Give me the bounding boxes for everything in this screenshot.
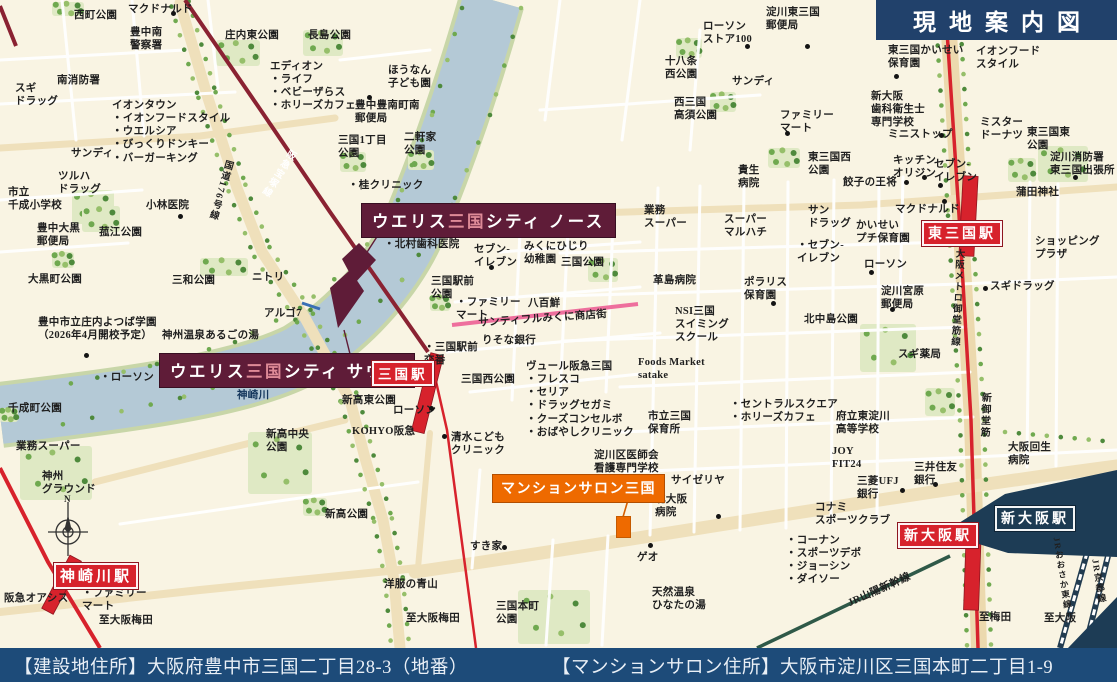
map-label: JR京都線 xyxy=(1089,558,1107,605)
map-label: JOY FIT24 xyxy=(832,445,862,471)
map-label: 北中島公園 xyxy=(804,313,858,326)
map-label: 三国1丁目 公園 xyxy=(338,134,387,160)
map-label: 豊中大黒 郵便局 xyxy=(37,222,80,248)
poi-dot xyxy=(942,199,947,204)
poi-dot xyxy=(894,74,899,79)
map-label: 業務 スーパー xyxy=(644,204,687,230)
map-label: 淀川東三国 郵便局 xyxy=(766,6,820,32)
map-label: 西三国 高須公園 xyxy=(674,96,717,122)
map-label: JRおおさか東線 xyxy=(1051,536,1073,610)
poi-dot xyxy=(648,543,653,548)
map-label: ミスター ドーナツ xyxy=(980,116,1023,142)
map-label: 十八条 西公園 xyxy=(665,55,697,81)
map-label: 八百鮮 xyxy=(528,297,560,310)
wellith-south-mid: 三国 xyxy=(246,362,284,381)
poi-dot xyxy=(890,307,895,312)
map-label: 豊中市立庄内よつば学園 （2026年4月開校予定） xyxy=(38,316,157,342)
map-label: 淀川区医師会 看護専門学校 xyxy=(594,449,659,475)
map-label: 大阪メトロ御堂筋線 xyxy=(947,248,964,347)
poi-dot xyxy=(489,265,494,270)
map-label: ・ローソン xyxy=(100,371,154,384)
map-label: サン ドラッグ xyxy=(808,204,851,230)
poi-dot xyxy=(904,180,909,185)
map-label: イオンフード スタイル xyxy=(976,45,1041,71)
mansion-salon-marker xyxy=(616,516,631,538)
map-label: 神州温泉あるごの湯 xyxy=(162,329,259,342)
map-label: 業務スーパー xyxy=(16,440,81,453)
map-label: 阪急宝塚線 xyxy=(257,146,297,199)
map-label: 府立東淀川 高等学校 xyxy=(836,410,890,436)
map-label: ・セントラルスクエア ・ホリーズカフェ xyxy=(730,398,838,424)
map-label: 淀川消防署 東三国出張所 xyxy=(1050,151,1115,177)
map-label: スーパー マルハチ xyxy=(724,213,767,239)
map-label: 千成町公園 xyxy=(8,402,62,415)
map-label: ・北村歯科医院 xyxy=(384,238,460,251)
poi-dot xyxy=(442,434,447,439)
map-label: 大阪回生 病院 xyxy=(1008,441,1051,467)
map-label: 神州 グラウンド xyxy=(42,470,96,496)
map-label: 大黒町公園 xyxy=(28,273,82,286)
map-label: 三和公園 xyxy=(172,274,215,287)
address-bar: 【建設地住所】大阪府豊中市三国二丁目28-3（地番） 【マンションサロン住所】大… xyxy=(0,648,1117,682)
map-label: 革島病院 xyxy=(653,274,696,287)
site-guide-map: マクドナルド西町公園豊中南 警察署庄内東公園長島公園エディオン ・ライフ ・ベビ… xyxy=(0,0,1117,682)
map-label: 豊中豊南町南 郵便局 xyxy=(355,99,420,125)
poi-dot xyxy=(933,482,938,487)
poi-dot xyxy=(367,95,372,100)
map-label: 淀川宮原 郵便局 xyxy=(881,285,924,311)
map-label: 神崎川 xyxy=(237,389,269,402)
poi-dot xyxy=(983,286,988,291)
map-label: 阪急オアシス xyxy=(4,592,68,605)
mansion-salon-banner: マンションサロン三国 xyxy=(492,474,665,503)
map-label: 東三国西 公園 xyxy=(808,151,851,177)
map-label: 三菱UFJ 銀行 xyxy=(857,475,899,501)
map-label: 洋服の青山 xyxy=(384,578,438,591)
poi-dot xyxy=(1073,175,1078,180)
poi-dot xyxy=(502,545,507,550)
map-label: 東三国かいせい 保育園 xyxy=(888,44,964,70)
map-label: スギ薬局 xyxy=(898,348,941,361)
map-label: すき家 xyxy=(470,540,502,553)
map-label: ・セブン- イレブン xyxy=(797,239,844,265)
map-label: 長島公園 xyxy=(308,29,351,42)
map-label: りそな銀行 xyxy=(482,334,536,347)
poi-dot xyxy=(84,353,89,358)
poi-dot xyxy=(869,270,874,275)
map-label: サイゼリヤ xyxy=(671,474,725,487)
poi-dot xyxy=(171,11,176,16)
map-label: マクドナルド xyxy=(128,3,193,16)
poi-dot xyxy=(805,44,810,49)
construction-site-address: 【建設地住所】大阪府豊中市三国二丁目28-3（地番） xyxy=(14,653,468,679)
map-label: 小林医院 xyxy=(146,199,189,212)
map-label: 菰江公園 xyxy=(99,226,142,239)
map-labels-layer: マクドナルド西町公園豊中南 警察署庄内東公園長島公園エディオン ・ライフ ・ベビ… xyxy=(0,0,1117,648)
map-label: 蒲田神社 xyxy=(1016,186,1059,199)
wellith-north-banner: ウエリス三国シティ ノース xyxy=(361,203,616,238)
map-label: コナミ スポーツクラブ xyxy=(815,501,890,527)
map-label: 西町公園 xyxy=(74,9,117,22)
map-label: ニトリ xyxy=(252,271,284,284)
map-label: 二軒家 公園 xyxy=(404,131,436,157)
map-label: かいせい プチ保育園 xyxy=(856,219,910,245)
map-label: 新高公園 xyxy=(325,508,368,521)
wellith-north-mid: 三国 xyxy=(448,212,486,231)
poi-dot xyxy=(716,514,721,519)
map-label: ヴュール阪急三国 ・フレスコ ・セリア ・ドラッグセガミ ・クーズコンセルボ ・… xyxy=(526,360,634,439)
map-label: ツルハ ドラッグ xyxy=(58,170,101,196)
map-label: サンディ xyxy=(71,147,113,160)
map-label: N xyxy=(64,494,71,505)
map-label: イオンタウン ・イオンフードスタイル ・ウエルシア ・びっくりドンキー ・バーガ… xyxy=(112,99,230,165)
map-label: 三国公園 xyxy=(561,256,604,269)
poi-dot xyxy=(785,131,790,136)
salon-address: 【マンションサロン住所】大阪市淀川区三国本町二丁目1-9 xyxy=(552,653,1053,679)
page-title: 現地案内図 xyxy=(876,0,1117,40)
map-label: 至大阪梅田 xyxy=(99,614,153,627)
map-label: 天然温泉 ひなたの湯 xyxy=(652,586,706,612)
map-label: NSI三国 スイミング スクール xyxy=(675,305,729,344)
higashimikuni-station-banner: 東三国駅 xyxy=(921,220,1003,247)
map-label: ・コーナン ・スポーツデポ ・ジョーシン ・ダイソー xyxy=(786,534,861,587)
poi-dot xyxy=(939,133,944,138)
kanzakigawa-station-banner: 神崎川駅 xyxy=(53,562,139,590)
map-label: ショッピング プラザ xyxy=(1035,235,1100,261)
map-label: アルゴ7 xyxy=(264,307,302,320)
map-label: スギドラッグ xyxy=(990,280,1055,293)
wellith-south-pre: ウエリス xyxy=(170,362,246,381)
map-label: 至大阪梅田 xyxy=(406,612,460,625)
map-label: 新高東公園 xyxy=(342,394,396,407)
wellith-north-post: シティ ノース xyxy=(486,212,605,231)
map-label: ほうなん 子ども園 xyxy=(388,64,431,90)
map-label: 市立 千成小学校 xyxy=(8,186,62,212)
map-label: 至梅田 xyxy=(979,611,1011,624)
map-label: 三国本町 公園 xyxy=(496,600,539,626)
map-label: Foods Market satake xyxy=(638,356,705,382)
map-label: マクドナルド xyxy=(895,203,960,216)
mikuni-station-banner: 三国駅 xyxy=(371,360,435,387)
map-label: 貴生 病院 xyxy=(738,164,760,190)
map-label: サンディ xyxy=(732,75,774,88)
map-label: 南消防署 xyxy=(57,74,100,87)
map-label: 国道176号線 xyxy=(205,158,234,222)
poi-dot xyxy=(429,406,434,411)
map-label: ・桂クリニック xyxy=(348,179,424,192)
map-label: 餃子の王将 xyxy=(843,176,897,189)
map-label: 新大阪 歯科衛生士 専門学校 xyxy=(871,90,925,129)
shinosaka-station-banner-navy: 新大阪駅 xyxy=(994,505,1076,532)
map-label: スギ ドラッグ xyxy=(15,82,58,108)
map-label: セブン- イレブン xyxy=(474,243,517,269)
map-label: 庄内東公園 xyxy=(225,29,279,42)
map-label: 東三国東 公園 xyxy=(1027,126,1070,152)
map-label: 三国西公園 xyxy=(461,373,515,386)
shinosaka-station-banner-red: 新大阪駅 xyxy=(897,522,979,549)
wellith-north-pre: ウエリス xyxy=(372,212,448,231)
poi-dot xyxy=(745,44,750,49)
map-label: セブン- イレブン xyxy=(934,158,977,184)
map-label: ポラリス 保育園 xyxy=(744,276,787,302)
map-label: ローソン ストア100 xyxy=(703,20,752,46)
map-label: キッチン オリジン xyxy=(893,154,936,180)
map-label: 豊中南 警察署 xyxy=(130,26,162,52)
poi-dot xyxy=(922,175,927,180)
map-label: エディオン ・ライフ ・ベビーザらス ・ホリーズカフェ xyxy=(270,60,356,113)
map-label: ゲオ xyxy=(637,551,659,564)
poi-dot xyxy=(771,301,776,306)
poi-dot xyxy=(938,183,943,188)
map-label: 清水こども クリニック xyxy=(451,431,505,457)
poi-dot xyxy=(900,488,905,493)
poi-dot xyxy=(178,214,183,219)
map-label: 新高中央 公園 xyxy=(266,428,309,454)
map-label: 至大阪 xyxy=(1044,612,1076,625)
map-label: 新御堂筋 xyxy=(976,392,990,438)
map-label: 市立三国 保育所 xyxy=(648,410,691,436)
map-label: ・ファミリー マート xyxy=(82,587,147,613)
map-label: KOHYO阪急 xyxy=(352,425,415,438)
